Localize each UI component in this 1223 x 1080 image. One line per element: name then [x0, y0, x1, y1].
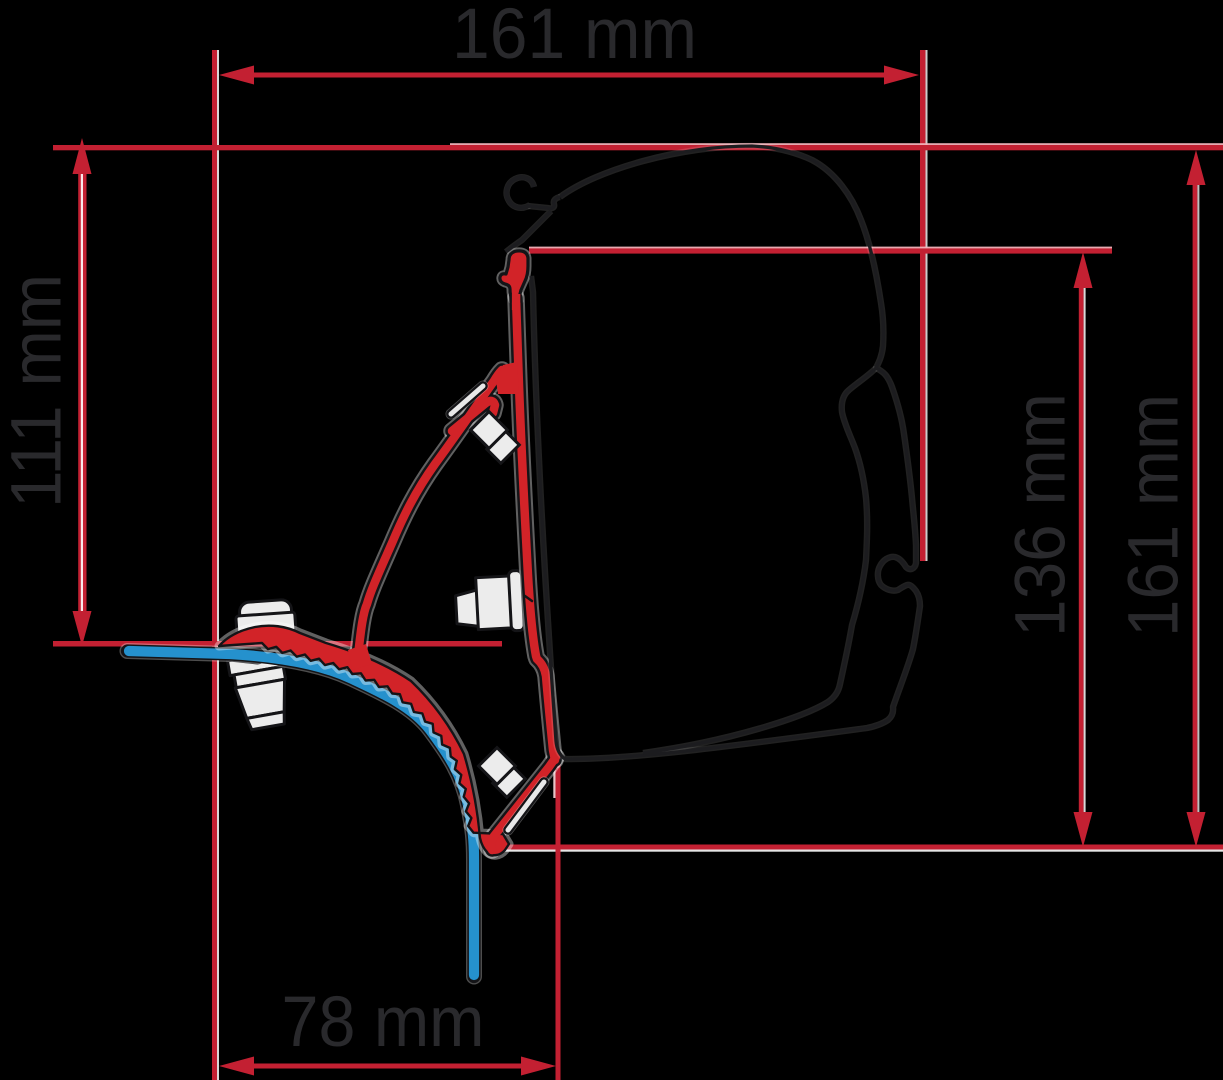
svg-text:111 mm: 111 mm [0, 274, 77, 508]
svg-text:136 mm: 136 mm [1002, 393, 1081, 637]
svg-text:161 mm: 161 mm [1115, 394, 1194, 637]
svg-text:161 mm: 161 mm [452, 0, 697, 74]
svg-text:78 mm: 78 mm [282, 983, 485, 1062]
